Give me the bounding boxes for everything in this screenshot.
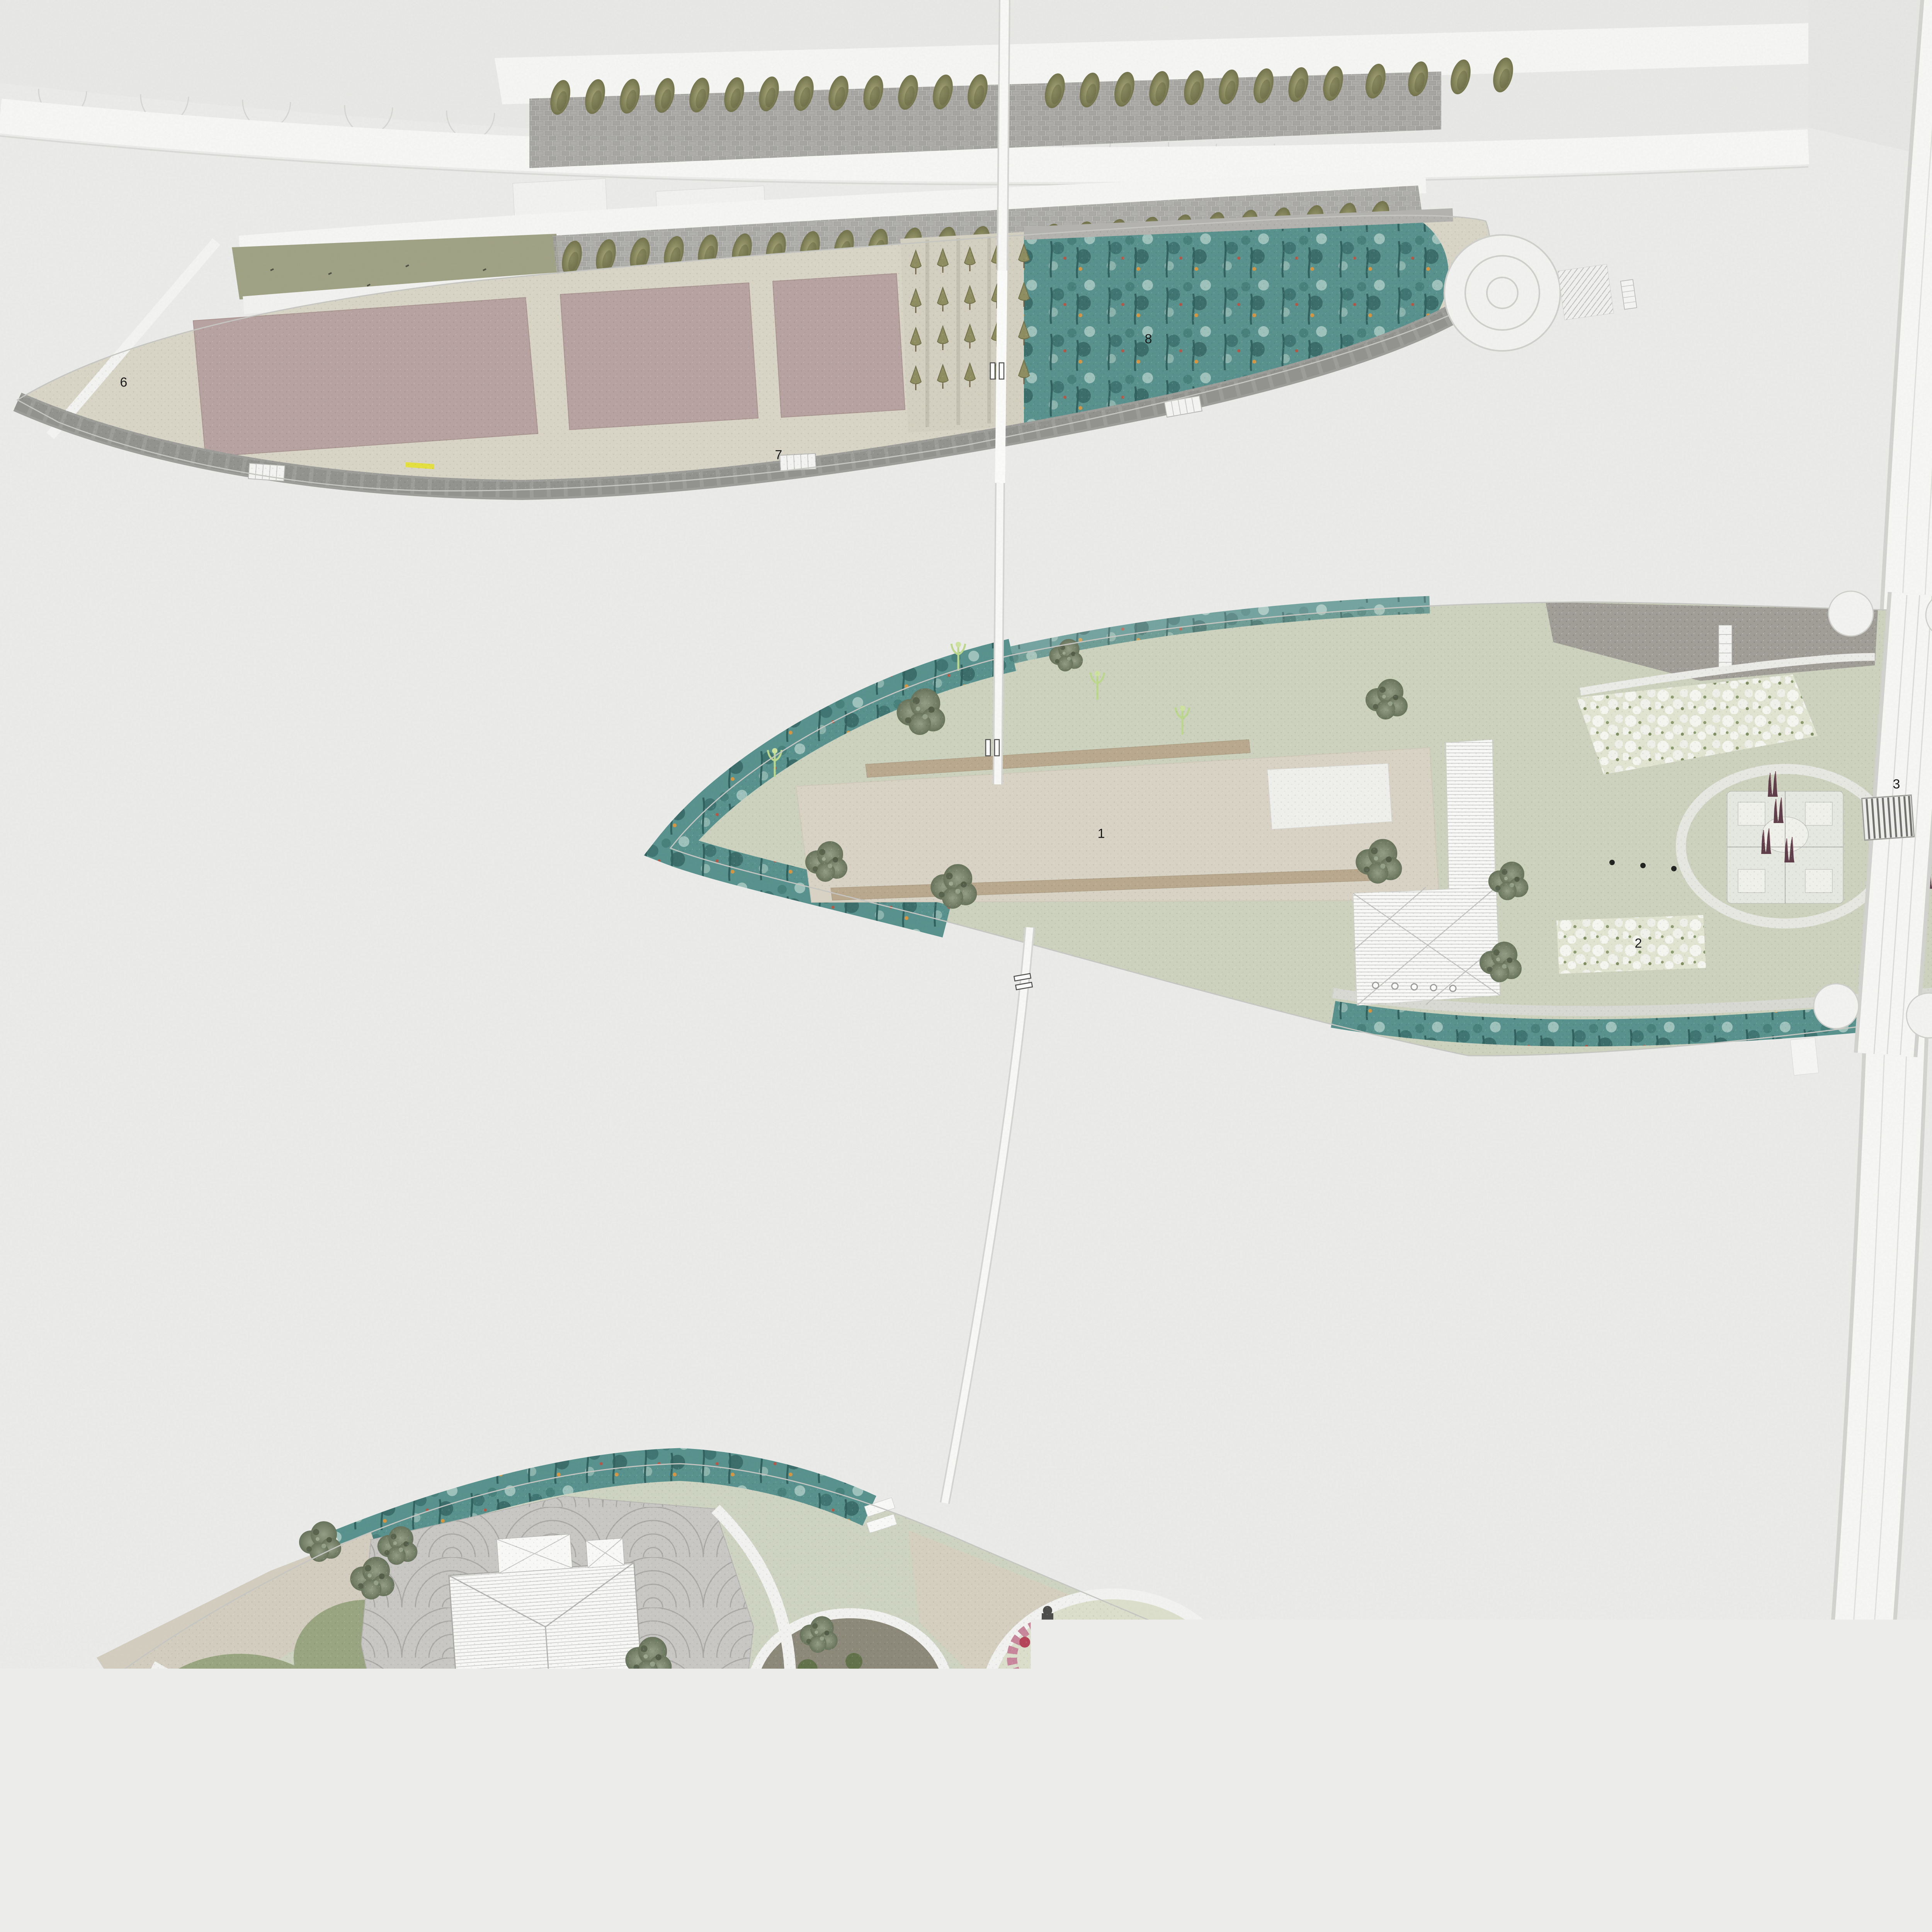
site-plan-sheet: 1Zvýrazněná osa, plocha mezi dvěmi valy,… xyxy=(0,0,1932,1932)
site-plan-graphic xyxy=(0,0,1932,1932)
paper-grain xyxy=(0,0,1932,1932)
